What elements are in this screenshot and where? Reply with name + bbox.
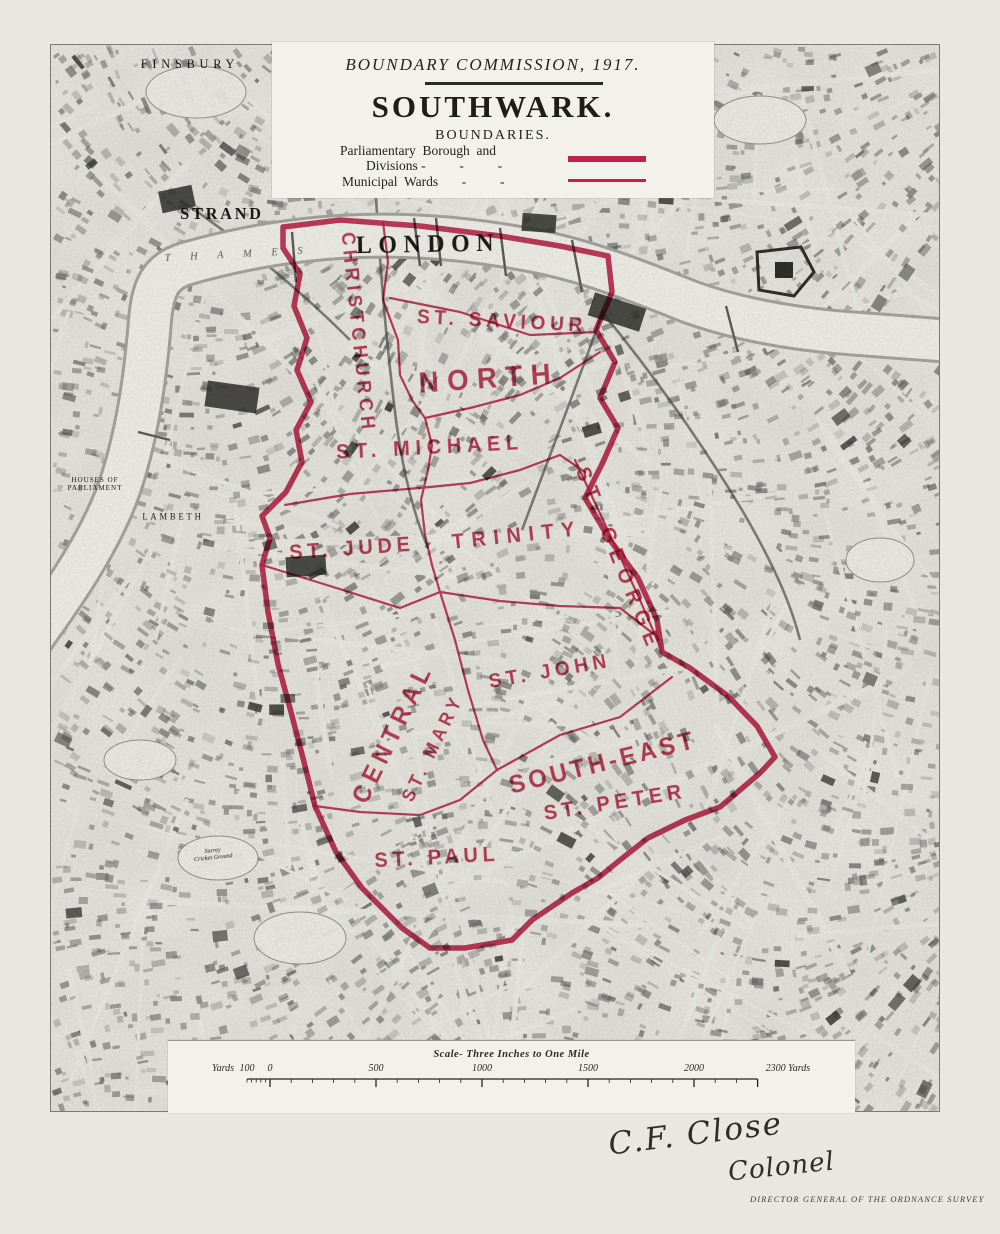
map-sheet: LONDONCHRISTCHURCHST. SAVIOURNORTHST. MI… [0,0,1000,1234]
scale-tick-label: 500 [369,1063,384,1074]
scale-tick-label: 1000 [472,1063,492,1074]
legend-parliamentary-label: Parliamentary Borough and [340,143,496,159]
legend-parliamentary-label-2: Divisions - - - [366,158,502,174]
scale-tick-label: 100 [240,1063,255,1074]
scale-tick-label: 0 [268,1063,273,1074]
page-subtitle: BOUNDARIES. [272,128,714,144]
print-grain [51,45,939,1111]
signature-title: DIRECTOR GENERAL OF THE ORDNANCE SURVEY [750,1194,950,1204]
heading-underline [425,82,603,85]
page-title: SOUTHWARK. [272,89,714,125]
scale-bar: Scale- Three Inches to One Mile Yards100… [168,1040,855,1113]
scale-tick-label: 2000 [684,1063,704,1074]
scale-bar-graphic: Yards10005001000150020002300 Yards [168,1041,855,1113]
scale-tick-label: Yards [212,1063,234,1074]
municipal-ward-swatch [568,179,646,182]
commission-heading: BOUNDARY COMMISSION, 1917. [272,55,714,75]
scale-tick-label: 2300 Yards [766,1063,811,1074]
scale-tick-label: 1500 [578,1063,598,1074]
title-box: BOUNDARY COMMISSION, 1917. SOUTHWARK. BO… [272,42,714,198]
parliamentary-boundary-swatch [568,156,646,162]
legend-municipal-label: Municipal Wards - - [342,174,505,190]
